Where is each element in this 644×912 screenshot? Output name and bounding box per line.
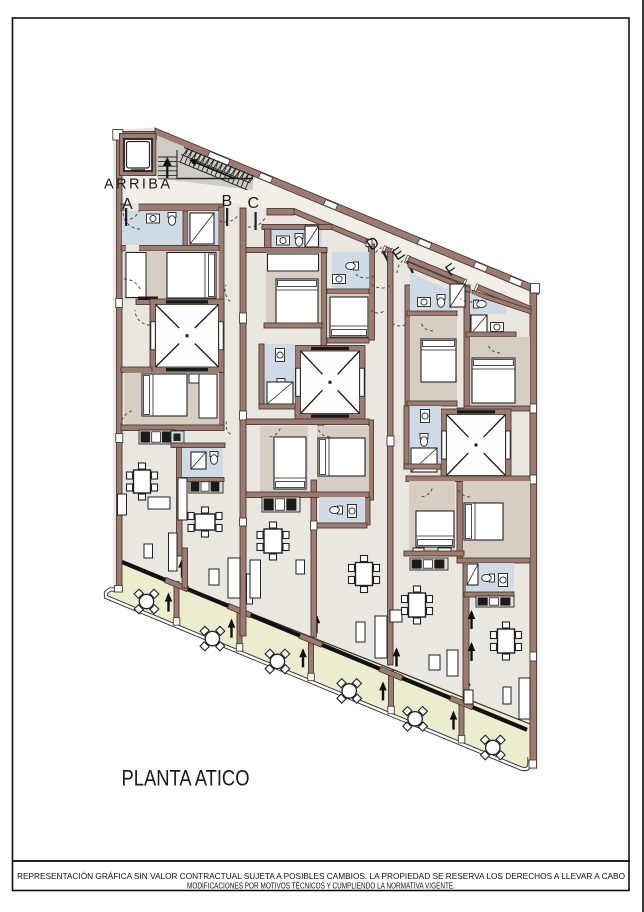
svg-text:MODIFICACIONES POR MOTIVOS TÉC: MODIFICACIONES POR MOTIVOS TÉCNICOS Y CU… (187, 881, 455, 891)
svg-text:REPRESENTACIÓN GRÁFICA SIN VAL: REPRESENTACIÓN GRÁFICA SIN VALOR CONTRAC… (17, 871, 625, 881)
svg-text:B: B (222, 193, 233, 210)
svg-text:A: A (122, 196, 133, 213)
svg-text:PLANTA ATICO: PLANTA ATICO (122, 766, 250, 791)
svg-text:C: C (248, 195, 260, 212)
